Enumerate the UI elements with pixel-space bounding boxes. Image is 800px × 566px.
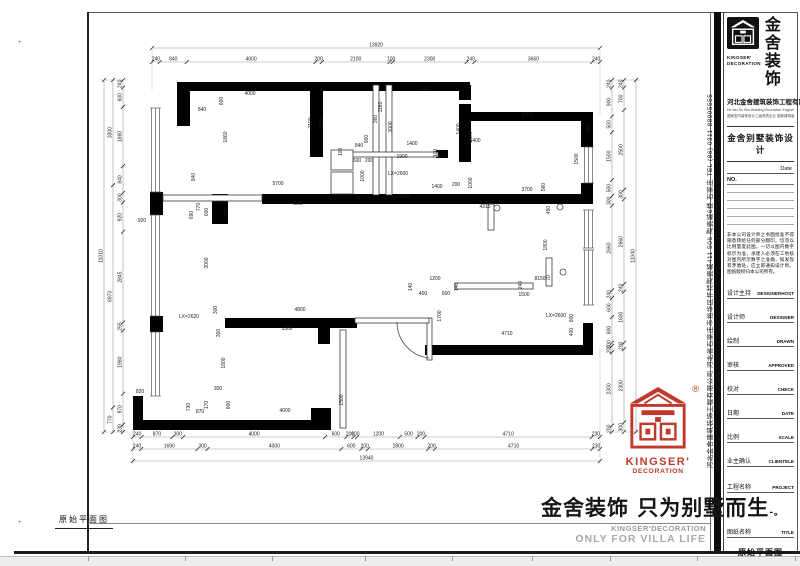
dimension-label: 600 bbox=[204, 208, 210, 217]
brand-slogan-text: 金舍装饰 只为别墅而生 bbox=[541, 495, 769, 520]
dimension-label: 2845 bbox=[118, 271, 124, 282]
field-label: 校对 bbox=[727, 384, 739, 393]
brand-slogan-sub: KINGSER'DECORATION ONLY FOR VILLA LIFE bbox=[556, 524, 706, 545]
wall-segment bbox=[311, 408, 331, 430]
dimension-label: 3700 bbox=[521, 187, 532, 193]
dimension-label: 300 bbox=[198, 444, 207, 450]
wall-segment bbox=[150, 192, 163, 215]
field-label-en: CHECK bbox=[778, 387, 794, 392]
fixture-circle bbox=[494, 205, 500, 211]
dimension-label: 5700 bbox=[272, 181, 283, 187]
dimension-label: 4710 bbox=[501, 331, 512, 337]
wall-segment bbox=[459, 85, 471, 100]
dimension-label: 240 bbox=[518, 281, 524, 290]
dimension-label: 11040 bbox=[631, 249, 637, 263]
drawing-name-label: 原始平面图 bbox=[55, 514, 113, 529]
dimension-label: 500 bbox=[404, 432, 413, 438]
dimension-label: 1400 bbox=[431, 184, 442, 190]
dimension-label: 400 bbox=[419, 291, 428, 297]
dimension-label: 300 bbox=[174, 432, 183, 438]
dimension-label: 1700 bbox=[437, 310, 443, 321]
title-field-date: 日期DATE bbox=[727, 408, 794, 419]
dimension-label: 240 bbox=[466, 57, 475, 63]
interior-wall bbox=[340, 330, 346, 428]
logo-cn-line2: 装饰 bbox=[765, 53, 794, 89]
wall-segment bbox=[425, 345, 593, 355]
dimension-label: 1000 bbox=[468, 177, 474, 188]
field-value: 原始平面图 bbox=[727, 547, 794, 558]
wall-segment bbox=[262, 194, 593, 204]
dimension-label: 200 bbox=[452, 182, 461, 188]
title-field-scale: 比例SCALE bbox=[727, 432, 794, 443]
floor-plan: 1392024084040002002100100230024036602402… bbox=[0, 0, 800, 566]
dimension-label: 200 bbox=[619, 342, 625, 351]
disclaimer-text: 非本公司设计师之书面批准不得随意转给任何部分翻印。切勿以比例量度此图，一切以图内… bbox=[727, 232, 794, 275]
logo-en-line2: DECORATION bbox=[727, 61, 761, 66]
interior-wall bbox=[546, 258, 552, 286]
dimension-label: 1860 bbox=[118, 131, 124, 142]
field-label: 绘制 bbox=[727, 336, 739, 345]
dimension-label: 240 bbox=[607, 290, 613, 299]
ruled-line bbox=[727, 185, 794, 193]
ruled-line bbox=[727, 193, 794, 201]
red-logo-subtitle: DECORATION bbox=[613, 468, 703, 475]
dimension-label: 3000 bbox=[319, 117, 325, 128]
logo-en-line1: KINGSER' bbox=[727, 55, 761, 60]
dimension-label: 1200 bbox=[373, 432, 384, 438]
interior-wall bbox=[386, 85, 392, 195]
dimension-label: 100 bbox=[433, 149, 439, 158]
no-label: NO. bbox=[727, 174, 794, 185]
dimension-label: 2500 bbox=[619, 144, 625, 155]
dimension-label: 1500 bbox=[518, 292, 529, 298]
dimension-label: 700 bbox=[619, 94, 625, 103]
door-swing-arc bbox=[397, 322, 429, 358]
dimension-label: 300 bbox=[216, 329, 222, 338]
dimension-label: 300 bbox=[214, 386, 223, 392]
dimension-label: 240 bbox=[118, 79, 124, 88]
dimension-label: 600 bbox=[347, 444, 356, 450]
dimension-label: 600 bbox=[118, 93, 124, 102]
dimension-label: 240 bbox=[133, 444, 142, 450]
dimension-label: 240 bbox=[152, 57, 161, 63]
brand-slogan-suffix: -。 bbox=[769, 508, 784, 518]
dimension-label: 3660 bbox=[528, 57, 539, 63]
dimension-label: 770 bbox=[196, 203, 202, 212]
dimension-label: 240 bbox=[619, 79, 625, 88]
field-label: 图纸名称 bbox=[727, 527, 751, 536]
dimension-label: 4000 bbox=[244, 91, 255, 97]
dimension-label: 1800 bbox=[543, 239, 549, 250]
dimension-label: 200 bbox=[365, 158, 374, 164]
dimension-label: 240 bbox=[607, 79, 613, 88]
interior-wall bbox=[373, 85, 379, 195]
dimension-label: 1860 bbox=[223, 131, 229, 142]
kingser-black-logo-icon: KINGSER' DECORATION bbox=[727, 17, 761, 89]
fixture-circle bbox=[560, 269, 566, 275]
brand-slogan: 金舍装饰 只为别墅而生-。 bbox=[541, 492, 784, 522]
logo-cn-line1: 金舍 bbox=[765, 17, 794, 53]
dimension-label: 2300 bbox=[419, 87, 430, 93]
dimension-label: 100 bbox=[338, 148, 344, 157]
dimension-label: 300 bbox=[607, 196, 613, 205]
product-title: 金舍别墅装饰设计 bbox=[727, 126, 794, 162]
dimension-label: 840 bbox=[191, 173, 197, 182]
dimension-label: 3000 bbox=[204, 257, 210, 268]
dimension-label: 4000 bbox=[269, 444, 280, 450]
logo-cn-text: 金舍 装饰 bbox=[765, 17, 794, 89]
title-block-fields: 设计主持DESIGNERHOST设计师DESIGNER绘制DRAWN审核APPR… bbox=[727, 288, 794, 566]
field-label-en: DRAWN bbox=[777, 339, 794, 344]
dimension-label: 4000 bbox=[249, 432, 260, 438]
kingser-red-logo: ® KINGSER' DECORATION bbox=[613, 387, 703, 475]
field-label: 审核 bbox=[727, 360, 739, 369]
dimension-label: 820 bbox=[136, 389, 145, 395]
field-label: 日期 bbox=[727, 408, 739, 417]
dimension-label: 100 bbox=[351, 432, 360, 438]
field-label-en: DESIGNERHOST bbox=[757, 291, 794, 296]
dimension-label: 1600 bbox=[468, 131, 474, 142]
dimension-label: 1400 bbox=[456, 123, 462, 134]
dimension-label: 200 bbox=[607, 345, 613, 354]
dimension-label: LX=2600 bbox=[389, 194, 409, 200]
red-logo-title: KINGSER' bbox=[613, 456, 703, 468]
dimension-label: 230 bbox=[592, 432, 601, 438]
dimension-label: 1500 bbox=[574, 153, 580, 164]
dimension-label: 4315 bbox=[479, 204, 490, 210]
dimension-label: 730 bbox=[186, 403, 192, 412]
dimension-label: 690 bbox=[189, 211, 195, 220]
dimension-label: 1500 bbox=[339, 394, 345, 405]
dimension-label: 230 bbox=[118, 424, 124, 433]
dimension-label: LX=2600 bbox=[388, 171, 408, 177]
dimension-label: 500 bbox=[607, 120, 613, 129]
dimension-label: 300 bbox=[118, 193, 124, 202]
dimension-label: 450 bbox=[546, 206, 552, 215]
title-field-designer: 设计师DESIGNER bbox=[727, 312, 794, 323]
registered-trademark-icon: ® bbox=[692, 384, 699, 394]
dimension-label: 1000 bbox=[360, 170, 366, 181]
dimension-label: 200 bbox=[417, 432, 426, 438]
dimension-label: 500 bbox=[607, 184, 613, 193]
dimension-label: 900 bbox=[607, 98, 613, 107]
dimension-label: 3000 bbox=[388, 121, 394, 132]
dimension-label: 840 bbox=[169, 57, 178, 63]
dimension-label: 1200 bbox=[429, 276, 440, 282]
dimension-label: 8150 bbox=[534, 276, 545, 282]
fixture-circle bbox=[557, 204, 563, 210]
dimension-label: 870 bbox=[153, 432, 162, 438]
field-label-en: CLIENTELE bbox=[768, 459, 794, 464]
dimension-label: 11010 bbox=[99, 249, 105, 263]
dimension-label: 840 bbox=[198, 107, 207, 113]
dimension-label: 4710 bbox=[508, 444, 519, 450]
interior-wall bbox=[331, 172, 353, 194]
field-label: 设计主持 bbox=[727, 288, 751, 297]
dimension-label: 840 bbox=[355, 143, 364, 149]
dimension-label: 970 bbox=[118, 405, 124, 414]
dimension-label: 900 bbox=[364, 135, 370, 144]
field-label-en: TITLE bbox=[781, 530, 794, 535]
dimension-label: 170 bbox=[204, 401, 210, 410]
title-field-designerhost: 设计主持DESIGNERHOST bbox=[727, 288, 794, 299]
wall-segment bbox=[150, 316, 163, 332]
title-field-drawn: 绘制DRAWN bbox=[727, 336, 794, 347]
title-field-clientele: 业主确认CLIENTELE bbox=[727, 456, 794, 467]
field-label-en: SCALE bbox=[778, 435, 794, 440]
dimension-label: 920 bbox=[118, 213, 124, 222]
interior-wall bbox=[427, 318, 432, 360]
dimension-label: 6970 bbox=[108, 291, 114, 302]
dimension-label: 600 bbox=[353, 158, 362, 164]
dimension-label: 4710 bbox=[503, 432, 514, 438]
dimension-label: 1980 bbox=[118, 356, 124, 367]
dimension-label: 1400 bbox=[406, 141, 417, 147]
dimension-label: 1160 bbox=[378, 101, 384, 112]
dimension-label: 2660 bbox=[607, 242, 613, 253]
company-address-vertical-text: 河北金舍建筑装饰工程有限公司 河北省石家庄市裕华区怀特陶瓷城411 506 陶瓷… bbox=[704, 94, 714, 469]
dimension-label: 2300 bbox=[424, 57, 435, 63]
dimension-label: 13920 bbox=[369, 43, 383, 49]
title-field-check: 校对CHECK bbox=[727, 384, 794, 395]
dimension-label: 240 bbox=[133, 432, 142, 438]
dimension-label: 140 bbox=[408, 283, 414, 292]
ruled-line bbox=[727, 217, 794, 225]
dimension-label: 2100 bbox=[308, 117, 314, 128]
dimension-label: 200 bbox=[427, 444, 436, 450]
drawing-sheet: 1392024084040002002100100230024036602402… bbox=[0, 0, 800, 566]
field-label: 业主确认 bbox=[727, 456, 751, 465]
dimension-label: 200 bbox=[607, 424, 613, 433]
ruled-line bbox=[727, 209, 794, 217]
dimension-label: 800 bbox=[569, 314, 575, 323]
dimension-label: 140 bbox=[454, 283, 460, 292]
field-label: 比例 bbox=[727, 432, 739, 441]
company-certificates: 国家室内装饰设计乙级资质企业 国家建筑装饰施工乙级资质企业 bbox=[727, 114, 794, 119]
dimension-label: LX=2600 bbox=[546, 313, 566, 319]
dimension-label: 4800 bbox=[291, 201, 302, 207]
wall-segment bbox=[133, 420, 320, 430]
interior-wall bbox=[348, 152, 438, 157]
dimension-label: 400 bbox=[569, 328, 575, 337]
field-label: 工程名称 bbox=[727, 482, 751, 491]
ruled-line bbox=[727, 201, 794, 209]
dimension-label: 600 bbox=[219, 97, 225, 106]
dimension-label: 600 bbox=[442, 291, 451, 297]
dimension-label: 560 bbox=[541, 183, 547, 192]
interior-wall bbox=[355, 318, 429, 323]
dimension-label: 4000 bbox=[246, 57, 257, 63]
dimension-label: 600 bbox=[586, 125, 592, 134]
title-block: KINGSER' DECORATION 金舍 装饰 河北金舍建筑装饰工程有限公司… bbox=[723, 12, 797, 551]
date-label: Date bbox=[727, 162, 794, 174]
title-block-logo-row: KINGSER' DECORATION 金舍 装饰 bbox=[727, 17, 794, 89]
brand-slogan-en: KINGSER'DECORATION bbox=[556, 524, 706, 533]
dimension-label: 1900 bbox=[396, 154, 407, 160]
dimension-label: 1800 bbox=[221, 357, 227, 368]
dimension-label: 1690 bbox=[164, 444, 175, 450]
dimension-label: 70 bbox=[546, 275, 552, 281]
dimension-label: 920 bbox=[138, 218, 147, 224]
dimension-label: 4000 bbox=[279, 408, 290, 414]
dimension-label: 240 bbox=[592, 57, 601, 63]
dimension-label: 800 bbox=[607, 326, 613, 335]
field-label-en: DESIGNER bbox=[770, 315, 794, 320]
dimension-label: 230 bbox=[592, 444, 601, 450]
kingser-emblem-icon bbox=[629, 387, 687, 449]
field-label-en: DATE bbox=[782, 411, 794, 416]
dimension-label: 3300 bbox=[108, 127, 114, 138]
dimension-label: 4800 bbox=[294, 307, 305, 313]
dimension-label: 100 bbox=[387, 57, 396, 63]
dimension-label: 1500 bbox=[607, 150, 613, 161]
dimension-label: 2100 bbox=[350, 57, 361, 63]
dimension-label: 255 bbox=[118, 322, 124, 331]
dimension-label: 840 bbox=[118, 175, 124, 184]
field-label-en: PROJECT bbox=[772, 485, 794, 490]
dimension-label: 2300 bbox=[607, 383, 613, 394]
field-label: 设计师 bbox=[727, 312, 745, 321]
dimension-label: 300 bbox=[619, 190, 625, 199]
dimension-label: 3700 bbox=[521, 112, 532, 118]
wall-segment bbox=[318, 318, 330, 344]
dimension-label: 300 bbox=[213, 306, 219, 315]
dimension-label: 1800 bbox=[393, 444, 404, 450]
title-field-title: 图纸名称TITLE bbox=[727, 527, 794, 538]
dimension-label: 770 bbox=[108, 415, 114, 424]
dimension-label: 360 bbox=[373, 115, 379, 124]
title-field-approved: 审核APPROVED bbox=[727, 360, 794, 371]
dimension-label: 13940 bbox=[360, 456, 374, 462]
company-name: 河北金舍建筑装饰工程有限公司 bbox=[727, 96, 794, 106]
company-name-en: He Bei Jin She Building Decoration Engin… bbox=[727, 108, 794, 112]
interior-wall bbox=[163, 195, 262, 201]
wall-segment bbox=[583, 323, 593, 355]
dimension-label: 1600 bbox=[619, 311, 625, 322]
dimension-label: 600 bbox=[332, 432, 341, 438]
dimension-label: 240 bbox=[619, 283, 625, 292]
dimension-label: 700 bbox=[224, 209, 230, 218]
field-label-en: APPROVED bbox=[768, 363, 794, 368]
dimension-label: 800 bbox=[226, 401, 232, 410]
dimension-label: LX=2620 bbox=[179, 314, 199, 320]
dimension-label: 600 bbox=[607, 303, 613, 312]
dimension-label: 3300 bbox=[281, 326, 292, 332]
dimension-label: 2660 bbox=[619, 236, 625, 247]
dimension-label: 200 bbox=[360, 444, 369, 450]
brand-slogan-en2: ONLY FOR VILLA LIFE bbox=[556, 533, 706, 545]
